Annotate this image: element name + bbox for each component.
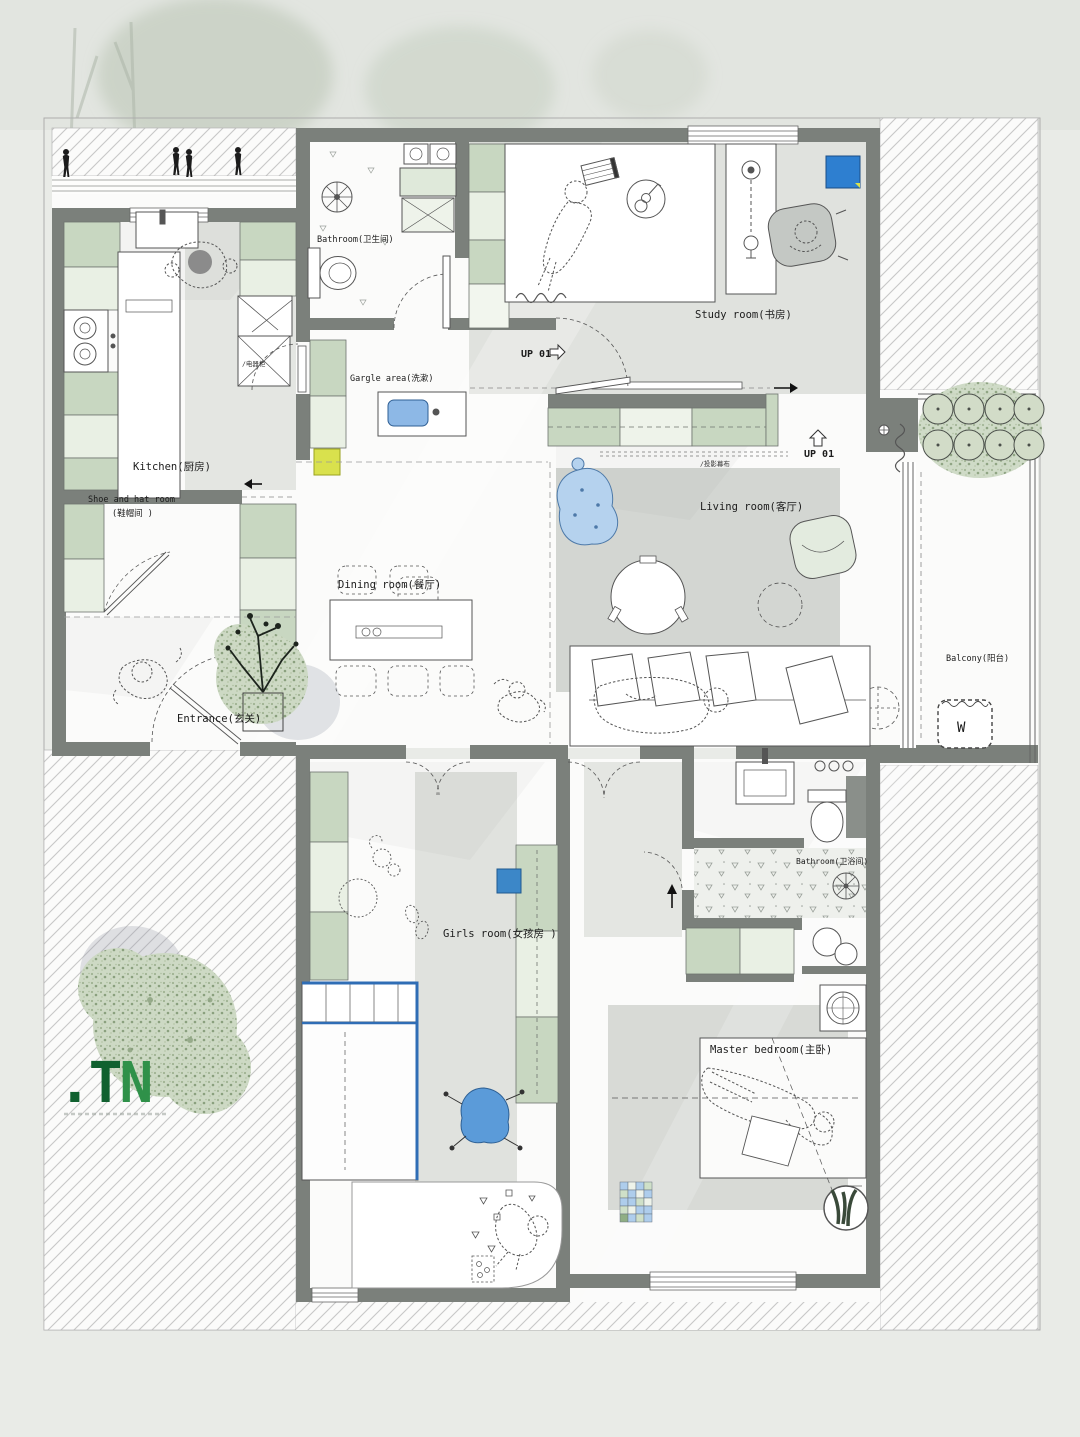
sofa-icon — [570, 646, 870, 746]
hatch-bottom-right — [880, 765, 1038, 1330]
hatch-right-top — [880, 118, 1038, 390]
blue-stool — [826, 156, 860, 188]
washer-dryer-icons — [404, 144, 456, 164]
fan-icon-2 — [833, 873, 859, 899]
label-bathroom-bottom: Bathroom(卫浴间) — [796, 856, 868, 866]
label-entrance: Entrance(玄关) — [177, 712, 261, 725]
label-master: Master bedroom(主卧) — [710, 1043, 832, 1056]
study-window — [688, 126, 798, 144]
stove-icon — [64, 310, 115, 372]
label-balcony: Balcony(阳台) — [946, 653, 1009, 664]
label-up01-a: UP 01 — [521, 349, 551, 360]
label-washer: W — [957, 720, 966, 736]
label-shoe-hat-2: (鞋帽间 ) — [112, 508, 153, 519]
label-appliance-cabinet: /电器柜 — [242, 359, 266, 368]
blue-toy-box — [497, 869, 521, 893]
label-study: Study room(书房) — [695, 308, 792, 321]
fridge-icon — [238, 296, 292, 386]
desk-icon — [726, 144, 776, 294]
floor-plan-canvas: Bathroom(卫生间) Gargle area(洗漱) Kitchen(厨房… — [0, 0, 1080, 1437]
label-gargle: Gargle area(洗漱) — [350, 373, 434, 384]
label-kitchen: Kitchen(厨房) — [133, 460, 211, 473]
round-basin-icon — [820, 985, 866, 1031]
kitchen-sink-icon — [136, 210, 198, 248]
girls-bed — [302, 982, 418, 1180]
fan-icon — [322, 182, 352, 212]
floor-plan-svg: Bathroom(卫生间) Gargle area(洗漱) Kitchen(厨房… — [0, 0, 1080, 1437]
play-mat-grid — [620, 1182, 652, 1222]
potted-plant-icon — [824, 1186, 868, 1230]
tall-unit — [846, 776, 866, 838]
sink-icon — [388, 400, 428, 426]
girls-window — [312, 1288, 358, 1302]
label-up01-b: UP 01 — [804, 449, 834, 460]
master-window — [650, 1272, 796, 1290]
label-shoe-hat-1: Shoe and hat room — [88, 495, 175, 505]
logo-text: .TN — [58, 1051, 150, 1116]
shower-tray-icon — [402, 198, 454, 232]
label-projector: /投影幕布 — [700, 459, 730, 468]
hatch-bottom-strip — [296, 1302, 880, 1330]
label-bathroom-top: Bathroom(卫生间) — [317, 234, 394, 245]
label-dining: Dining room(餐厅) — [338, 578, 441, 591]
label-girls: Girls room(女孩房 ) — [443, 927, 557, 940]
label-living: Living room(客厅) — [700, 500, 803, 513]
dining-table-icon — [330, 600, 472, 660]
